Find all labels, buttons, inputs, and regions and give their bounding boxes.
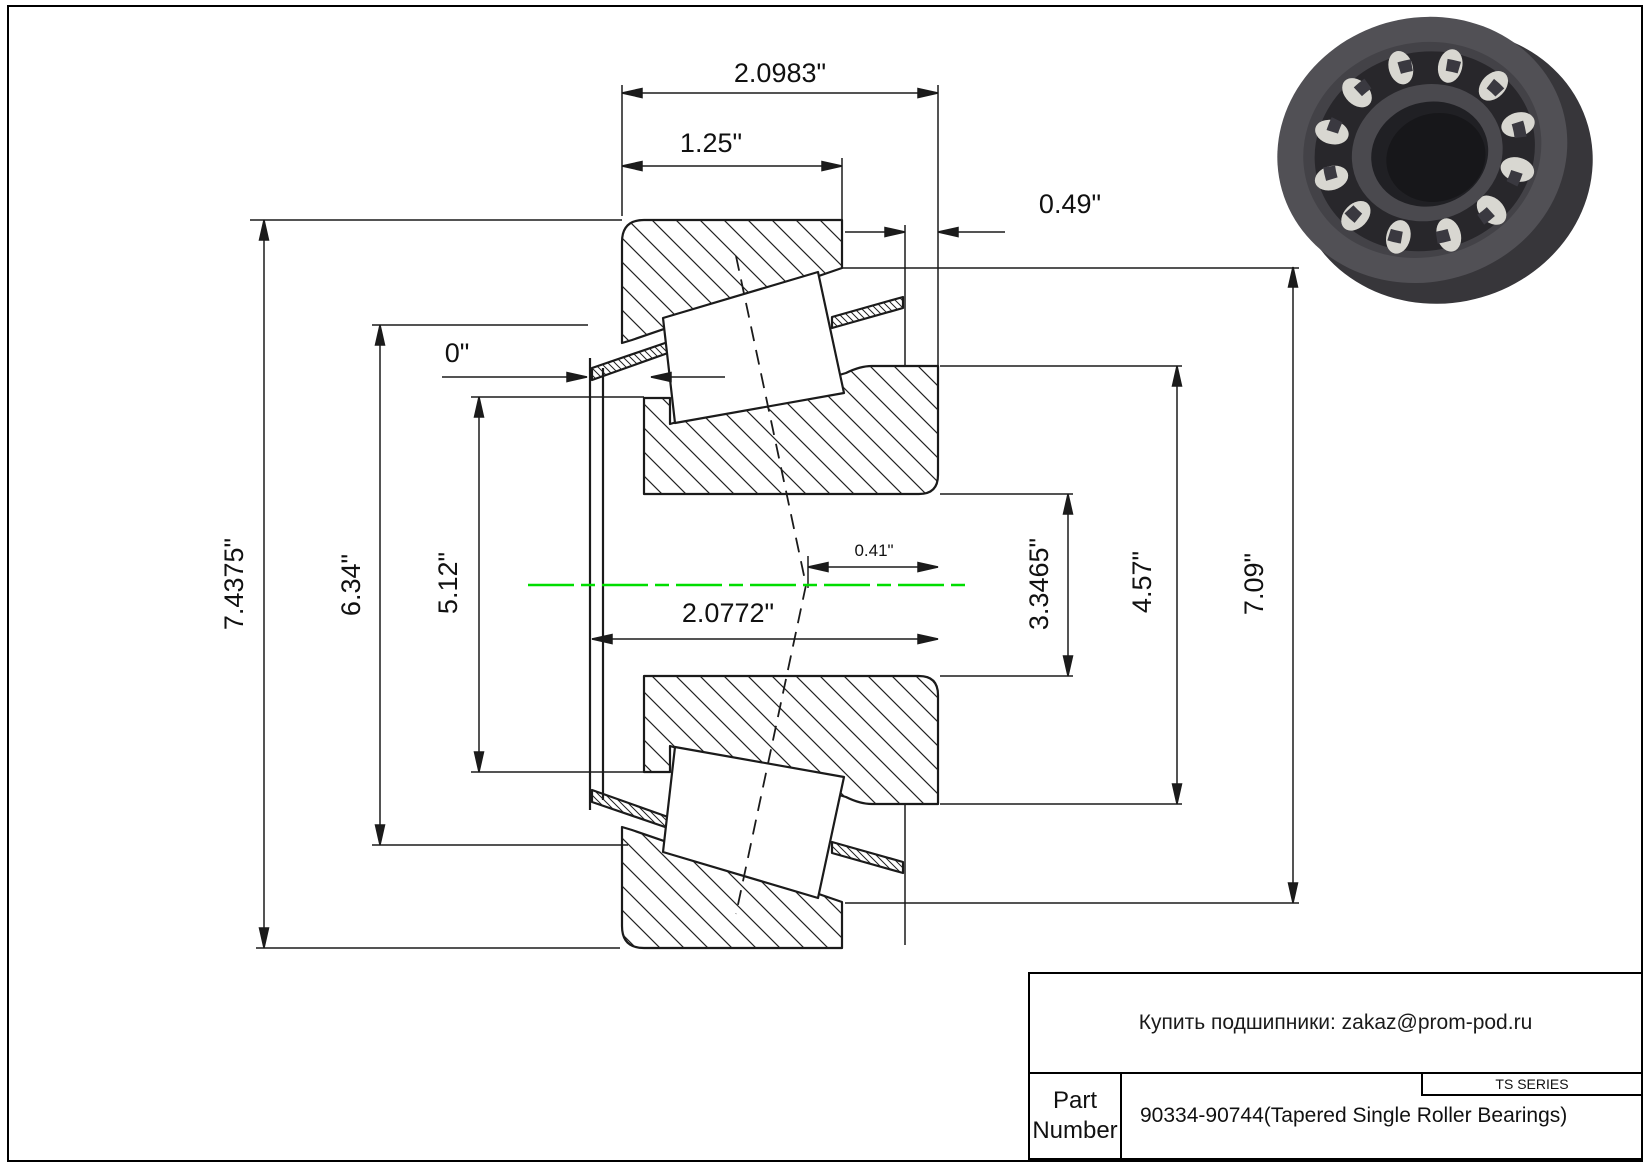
dim-front-face-diameter: 5.12" bbox=[433, 552, 463, 614]
title-block-supplier-note: Купить подшипники: zakaz@prom-pod.ru bbox=[1028, 972, 1643, 1074]
dim-cage-standout: 0.49" bbox=[1039, 189, 1101, 219]
dim-cone-width: 2.0772" bbox=[682, 598, 774, 628]
series-badge: TS SERIES bbox=[1421, 1072, 1643, 1096]
cage-strip-top-right bbox=[832, 297, 903, 328]
dim-effective-center: 0.41" bbox=[854, 541, 893, 560]
dim-cup-face-diameter: 7.09" bbox=[1239, 553, 1269, 615]
cage-strip-top-left bbox=[592, 342, 668, 380]
supplier-note-text: Купить подшипники: zakaz@prom-pod.ru bbox=[1139, 1011, 1533, 1035]
dim-overall-width: 2.0983" bbox=[734, 58, 826, 88]
dim-flange-diameter: 6.34" bbox=[336, 554, 366, 616]
cage-strip-bottom-right bbox=[832, 842, 903, 873]
dim-front-standout: 0" bbox=[445, 338, 470, 368]
cage-strip-bottom-left bbox=[592, 790, 668, 828]
part-number-label: Part Number bbox=[1030, 1074, 1122, 1158]
dim-rib-diameter: 4.57" bbox=[1127, 551, 1157, 613]
bearing-3d-render bbox=[1246, 0, 1626, 342]
dim-cup-width: 1.25" bbox=[680, 128, 742, 158]
dim-bore-diameter: 3.3465" bbox=[1024, 538, 1054, 630]
drawing-page: 2.0983" 1.25" 0.49" 0" 7.4375" 6.34" 5.1… bbox=[0, 0, 1649, 1167]
dim-outer-diameter: 7.4375" bbox=[219, 538, 249, 630]
